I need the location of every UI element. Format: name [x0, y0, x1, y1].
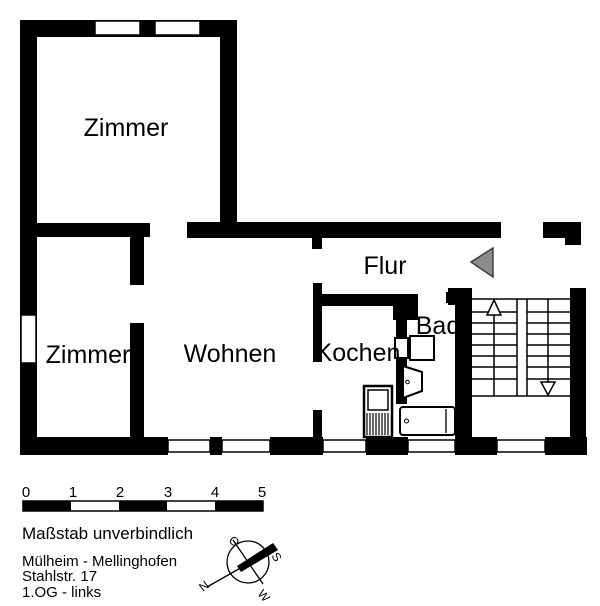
room-label-wohnen: Wohnen: [184, 340, 277, 368]
room-label-zimmer-bottom: Zimmer: [46, 341, 131, 369]
scale-note: Maßstab unverbindlich: [22, 524, 193, 543]
scale-bar: 0 1 2 3 4 5: [22, 484, 266, 511]
walls: [20, 20, 587, 455]
compass-label-n: N: [196, 578, 211, 594]
scale-seg-3: [119, 501, 167, 511]
wall-partition-top: [130, 237, 144, 285]
wall-bottom-2: [210, 437, 222, 455]
scale-num-3: 3: [164, 484, 172, 501]
bath-door-knob: [406, 380, 410, 384]
wall-bottom-6: [545, 437, 587, 455]
scale-seg-5: [215, 501, 263, 511]
window-bottom-4: [408, 440, 455, 452]
address-line-2: Stahlstr. 17: [22, 568, 97, 585]
window-bottom-3: [323, 440, 366, 452]
scale-num-1: 1: [69, 484, 77, 501]
stair-down-arrow: [541, 382, 555, 395]
room-label-bad: Bad: [416, 312, 460, 340]
bathtub-drain: [405, 419, 409, 423]
compass-n-line: [207, 566, 244, 587]
window-top-1: [95, 21, 140, 35]
kitchen-sink: [368, 390, 388, 410]
wall-mid-b: [187, 222, 501, 238]
wall-bottom-5: [455, 437, 497, 455]
window-left: [21, 315, 36, 363]
compass-label-w: W: [255, 587, 273, 605]
wall-stair-notch: [446, 292, 455, 303]
stair-up-arrow: [487, 300, 501, 315]
wall-toproom-right: [220, 20, 237, 238]
wall-kochen-left-2: [313, 410, 322, 438]
room-label-kochen: Kochen: [316, 339, 401, 367]
window-bottom-2: [222, 440, 270, 452]
scale-num-0: 0: [22, 484, 30, 501]
scale-num-2: 2: [116, 484, 124, 501]
wall-left: [20, 20, 37, 455]
wall-bottom-1: [20, 437, 168, 455]
compass-label-o: O: [226, 533, 242, 550]
wall-bottom-3: [270, 437, 323, 455]
staircase: [472, 299, 570, 396]
floorplan-drawing: Zimmer Zimmer Wohnen Kochen Bad Flur 0 1…: [0, 0, 600, 606]
wall-right: [570, 288, 586, 437]
window-bottom-stair: [497, 440, 545, 452]
wall-bottom-4: [366, 437, 408, 455]
wall-kochen-top: [322, 294, 393, 306]
wall-flur-stub: [312, 238, 322, 249]
wall-topright-corner: [565, 235, 581, 245]
address-line-3: 1.OG - links: [22, 584, 101, 601]
wall-kochen-corner: [393, 294, 418, 320]
scale-seg-1: [23, 501, 71, 511]
room-label-zimmer-top: Zimmer: [84, 114, 169, 142]
room-label-flur: Flur: [363, 252, 406, 280]
entrance-door-arrow: [471, 248, 493, 277]
bath-fixtures: [395, 336, 455, 435]
scale-num-5: 5: [258, 484, 266, 501]
window-top-2: [155, 21, 200, 35]
wall-partition-bottom: [130, 323, 144, 438]
compass-rose: N O S W: [196, 533, 284, 605]
kitchen-unit: [364, 386, 392, 437]
floorplan-page: Zimmer Zimmer Wohnen Kochen Bad Flur 0 1…: [0, 0, 600, 606]
scale-num-4: 4: [211, 484, 219, 501]
wall-stair-left: [455, 288, 472, 437]
wall-mid-a: [20, 223, 150, 237]
window-bottom-1: [168, 440, 210, 452]
